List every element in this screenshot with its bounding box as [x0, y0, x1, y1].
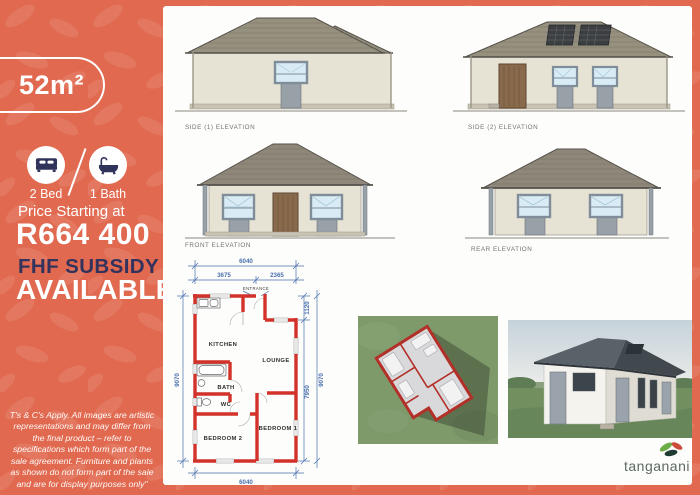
top-view-render-image	[358, 316, 498, 444]
dim-width-bottom: 6040	[239, 479, 253, 486]
floor-plan-drawing: 6040 3675 2365 9070 1120 7950 9070 6040 …	[168, 252, 330, 488]
bath-icon	[97, 156, 120, 175]
front-elevation-label: FRONT ELEVATION	[185, 242, 251, 249]
dim-right-main: 7950	[304, 385, 311, 399]
content-card: SIDE (1) ELEVATION	[163, 6, 692, 485]
room-bath: BATH	[217, 385, 234, 391]
rear-elevation-label: REAR ELEVATION	[471, 246, 532, 253]
bath-feature	[89, 146, 127, 184]
side2-elevation-drawing	[451, 12, 687, 122]
side2-elevation-label: SIDE (2) ELEVATION	[468, 124, 538, 131]
leaf-logo-icon	[658, 441, 683, 458]
property-flyer: 52m²	[0, 0, 700, 495]
area-label: 52m²	[19, 70, 84, 101]
room-kitchen: KITCHEN	[209, 342, 238, 348]
dim-right-top: 1120	[304, 301, 311, 315]
brand-name: tanganani	[624, 458, 690, 474]
floor-plan-figure: 6040 3675 2365 9070 1120 7950 9070 6040 …	[168, 252, 330, 488]
bed-feature	[27, 146, 65, 184]
dim-height-left: 9070	[174, 373, 181, 387]
side2-elevation-figure: SIDE (2) ELEVATION	[451, 12, 687, 134]
brand-logo: tanganani	[600, 438, 692, 482]
dim-width-left: 3675	[217, 272, 231, 279]
bed-count-label: 2 Bed	[16, 187, 76, 201]
bath-count-label: 1 Bath	[78, 187, 138, 201]
dim-right-total: 9070	[318, 373, 325, 387]
subsidy-line-2: AVAILABLE	[16, 274, 175, 306]
top-view-render	[358, 316, 498, 444]
dim-width-right: 2365	[270, 272, 284, 279]
rear-elevation-figure: REAR ELEVATION	[463, 136, 671, 256]
price-value: R664 400	[16, 218, 150, 252]
side1-elevation-drawing	[173, 12, 409, 122]
room-bedroom2: BEDROOM 2	[204, 436, 243, 442]
front-elevation-figure: FRONT ELEVATION	[183, 136, 397, 254]
bed-icon	[35, 156, 58, 174]
house-3d-render	[508, 320, 692, 438]
sidebar: 52m²	[0, 0, 163, 495]
terms-disclaimer: T's & C's Apply. All images are artistic…	[7, 410, 157, 490]
rear-elevation-drawing	[463, 136, 671, 246]
room-bedroom1: BEDROOM 1	[259, 426, 298, 432]
side1-elevation-figure: SIDE (1) ELEVATION	[173, 12, 409, 134]
brand-logo-image: tanganani	[600, 438, 692, 482]
entrance-label: ENTRANCE	[243, 286, 269, 291]
dim-width-total: 6040	[239, 258, 253, 265]
house-3d-render-image	[508, 320, 692, 438]
side1-elevation-label: SIDE (1) ELEVATION	[185, 124, 255, 131]
room-wc: WC	[221, 402, 232, 408]
room-lounge: LOUNGE	[262, 358, 289, 364]
area-badge: 52m²	[0, 57, 105, 113]
front-elevation-drawing	[183, 136, 397, 244]
